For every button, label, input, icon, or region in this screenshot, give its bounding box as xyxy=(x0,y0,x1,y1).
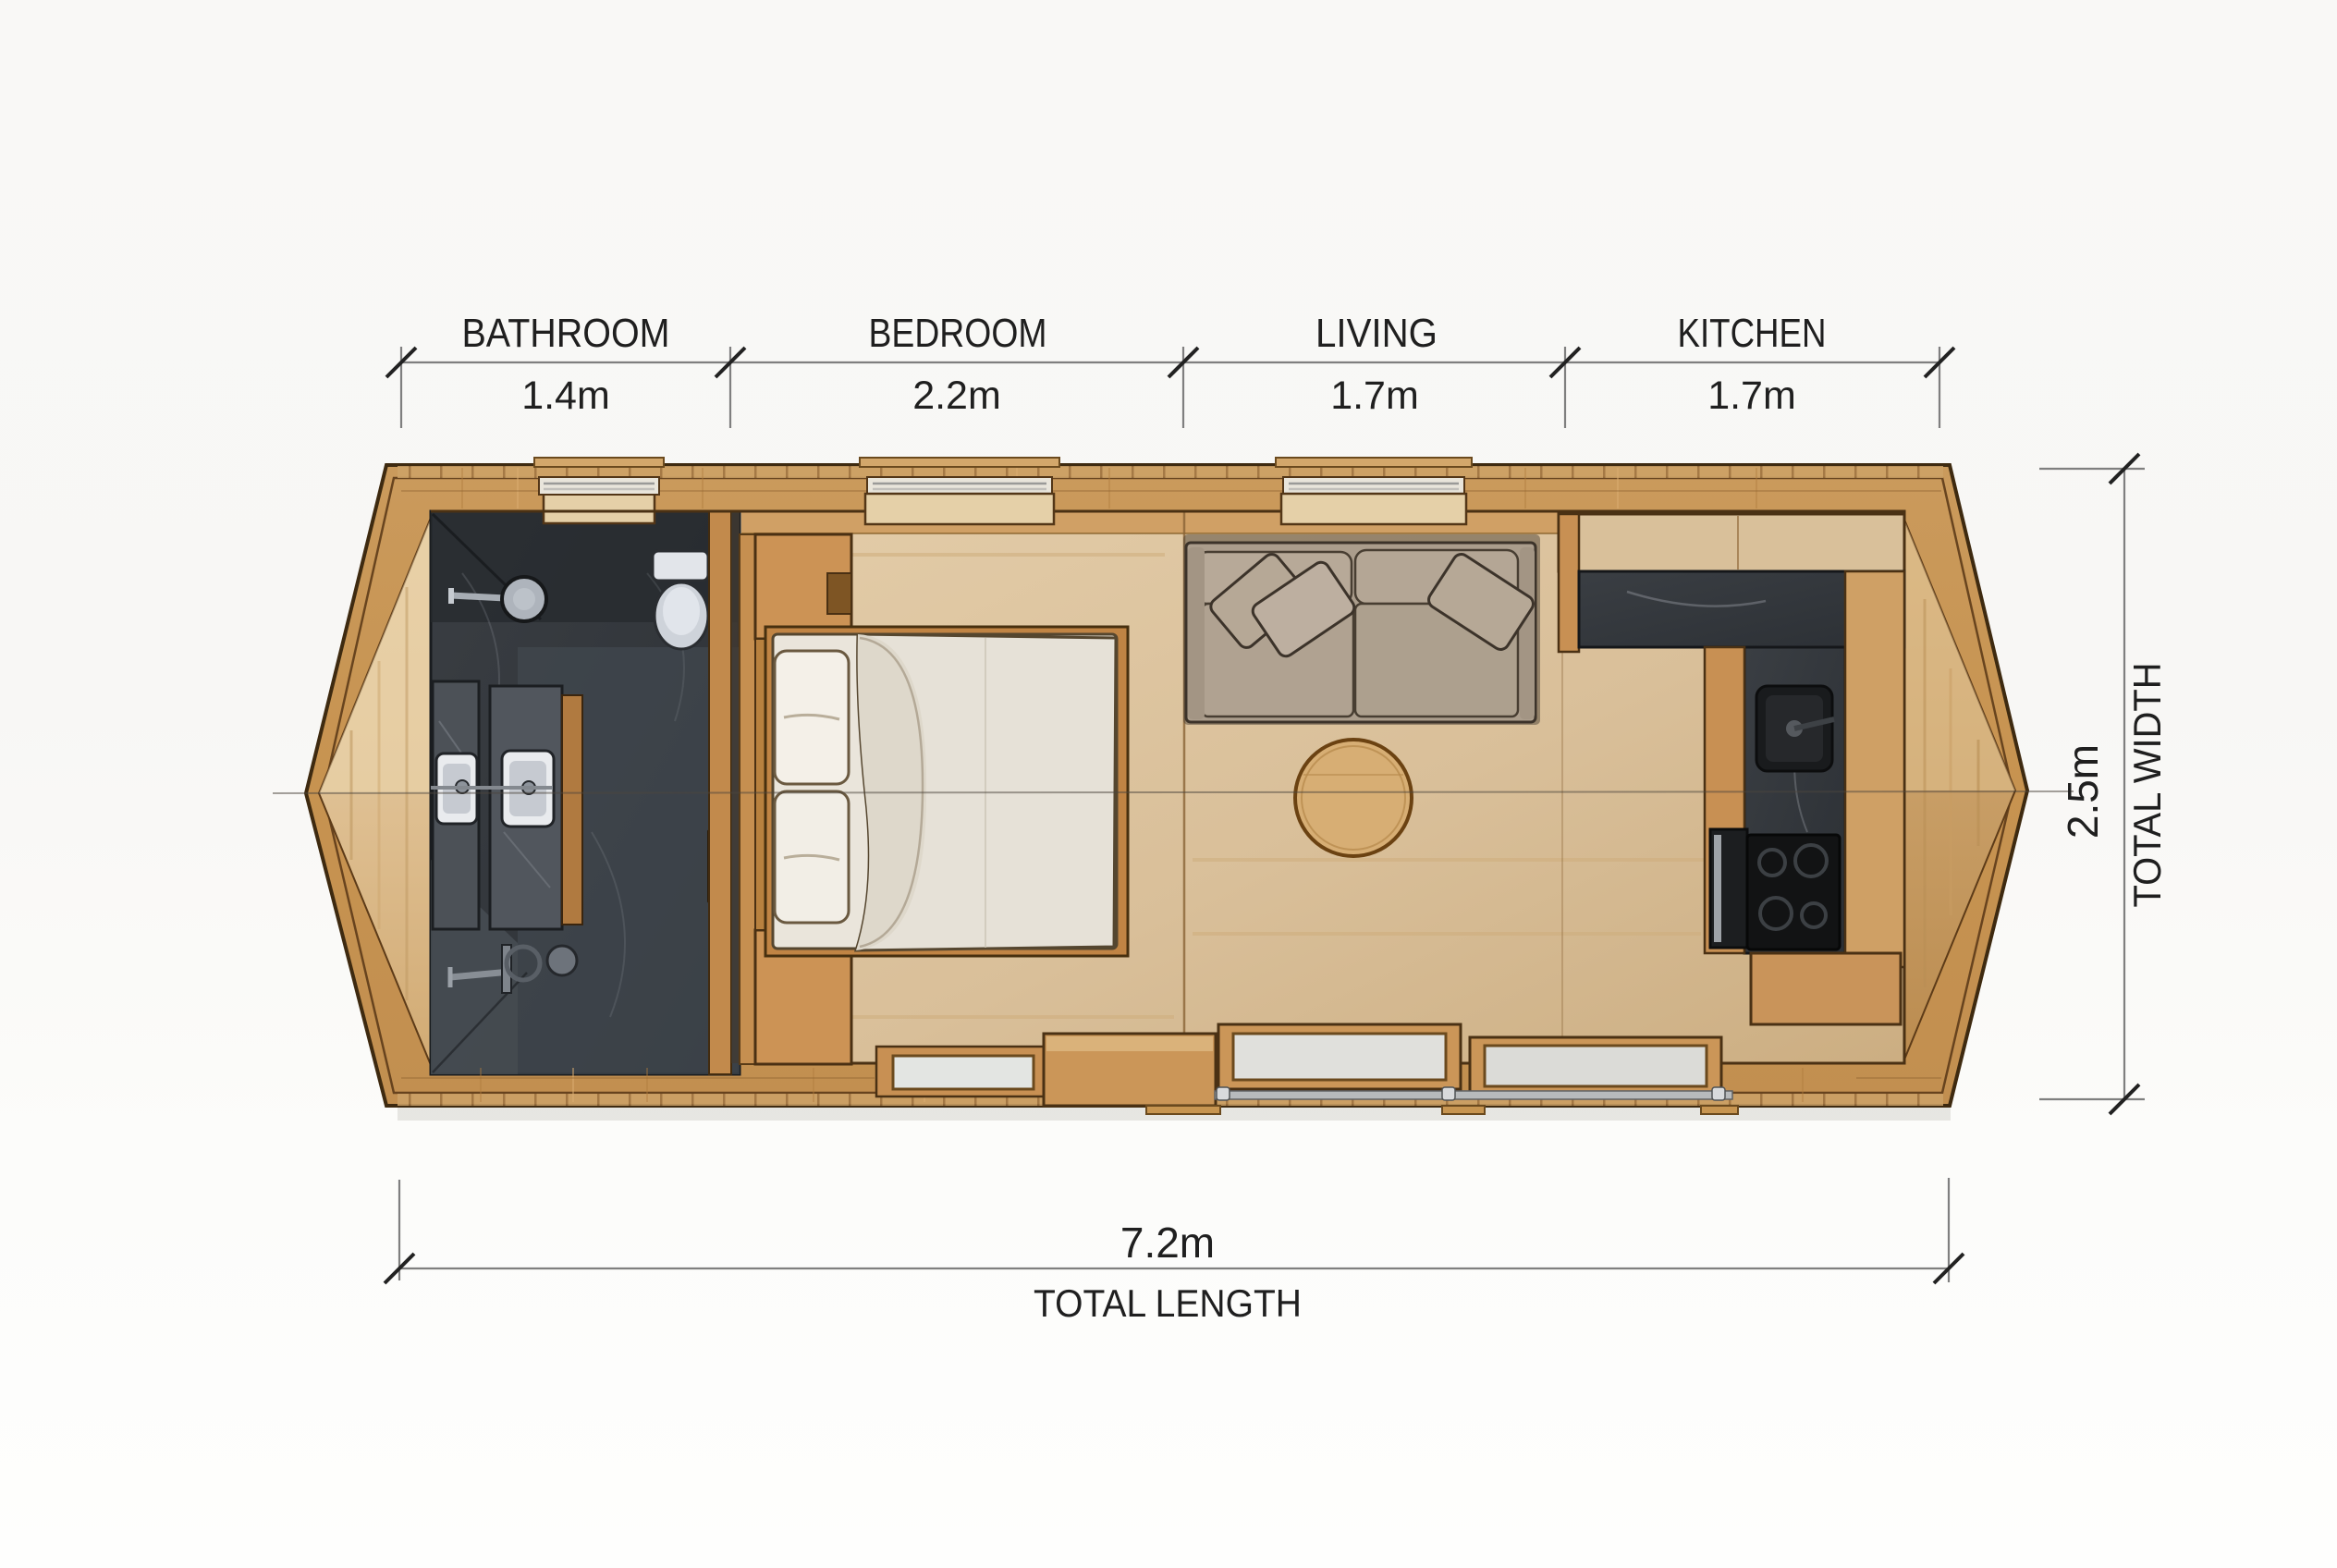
svg-text:1.7m: 1.7m xyxy=(1707,374,1796,418)
svg-text:LIVING: LIVING xyxy=(1315,311,1438,356)
svg-text:TOTAL WIDTH: TOTAL WIDTH xyxy=(2125,663,2169,908)
svg-text:BEDROOM: BEDROOM xyxy=(869,311,1047,356)
svg-text:BATHROOM: BATHROOM xyxy=(462,311,670,356)
svg-text:2.2m: 2.2m xyxy=(912,374,1001,418)
svg-text:2.5m: 2.5m xyxy=(2059,744,2107,839)
svg-text:KITCHEN: KITCHEN xyxy=(1678,311,1827,356)
svg-text:TOTAL LENGTH: TOTAL LENGTH xyxy=(1034,1281,1302,1325)
svg-text:1.7m: 1.7m xyxy=(1330,374,1419,418)
svg-text:7.2m: 7.2m xyxy=(1120,1219,1215,1267)
svg-text:1.4m: 1.4m xyxy=(521,374,610,418)
